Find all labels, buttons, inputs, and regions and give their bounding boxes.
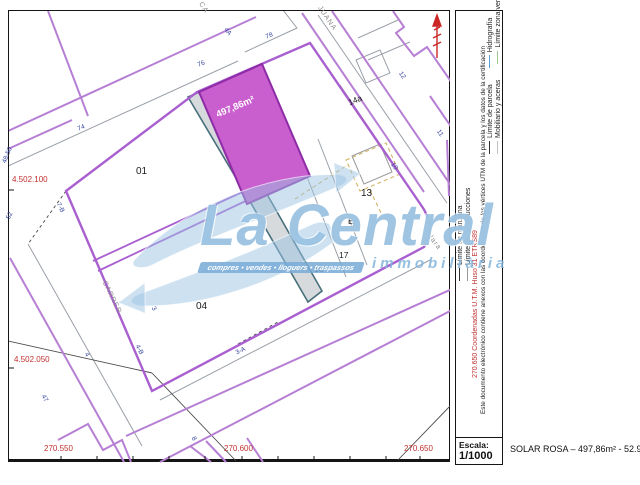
coord-label-x3: 270.650 [404,445,433,453]
legend-line-sample [497,51,498,64]
coord-label-y2: 4.502.050 [14,356,50,364]
legend-row-parcela-hidrografia: Límite de parcelaHidrografía [487,12,495,436]
document-note: Este documento electrónico contiene anex… [480,46,487,414]
legend-line-sample [497,141,498,154]
legend-row-document: Este documento electrónico contiene anex… [480,12,488,436]
plot-label-13: 13 [361,189,372,199]
cadastral-plan-page: { "map": { "area_label": "497,86m²", "re… [0,0,640,480]
legend-row-manzana: Límite de manzana [457,12,465,436]
legend-row-coordinates: 270.650 Coordenadas U.T.M. Huso 31 ETRS8… [472,12,480,436]
scale-box: Escala: 1/1000 [455,437,503,465]
legend-rotated-content: Límite de manzana Límite de construccion… [457,12,502,436]
plot-label-eg: Eg [348,217,358,226]
legend-line-sample [489,55,490,68]
legend-row-mobiliario-zonaverde: Mobiliario y acerasLímite zona verde [495,12,503,436]
legend-line-sample [489,141,490,154]
coord-label-x1: 270.550 [44,445,73,453]
legend-label: Límite de construcciones [465,188,472,265]
scale-value: 1/1000 [459,450,502,462]
scale-label: Escala: [459,440,502,450]
legend-label: Límite zona verde [495,0,502,48]
coord-label-y1: 4.502.100 [12,176,48,184]
coord-label-x2: 270.600 [224,445,253,453]
plot-label-16: 16 [314,265,323,274]
legend-line-sample [459,268,460,281]
legend-line-sample [467,268,468,281]
plot-label-01: 01 [136,167,147,177]
legend-label: Límite de manzana [457,205,464,265]
legend-label: Hidrografía [487,18,494,53]
legend-label: Mobiliario y aceras [495,80,502,138]
legend-label: Límite de parcela [487,84,494,138]
plot-label-17: 17 [339,251,348,260]
map-frame [8,10,450,462]
legend-row-construcciones: Límite de construcciones [465,12,473,436]
plot-label-04: 04 [196,302,207,312]
utm-coordinates-note: 270.650 Coordenadas U.T.M. Huso 31 ETRS8… [472,230,479,378]
listing-summary: SOLAR ROSA – 497,86m² - 52.900€ [510,444,640,454]
